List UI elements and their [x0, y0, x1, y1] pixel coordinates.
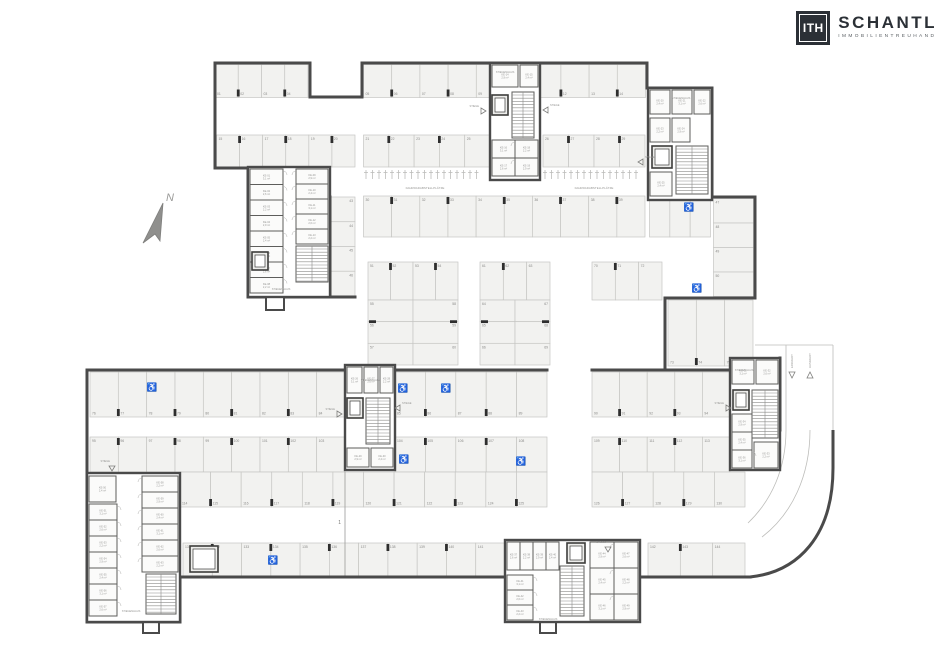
parking-stall	[647, 372, 675, 417]
stall-number: 85	[397, 412, 401, 416]
stall-number: 102	[290, 439, 296, 443]
stair-label: STIEGENHAUS	[361, 378, 380, 382]
stall-number: 118	[304, 502, 310, 506]
stall-row: 616263	[480, 262, 550, 300]
stall-number: 137	[361, 545, 367, 549]
stall-number: 08	[450, 92, 454, 96]
stall-row: 404142	[650, 196, 711, 237]
stall-number: 98	[177, 439, 181, 443]
stair-label: STIEGENHAUS	[539, 617, 558, 621]
stall-number: 46	[349, 273, 353, 277]
room-area: 3,1 m²	[99, 592, 106, 596]
stall-number: 36	[534, 198, 538, 202]
column-tick	[237, 90, 240, 97]
stall-number: 20	[334, 137, 338, 141]
stall-number: 84	[319, 412, 323, 416]
wheelchair-icon: ♿	[516, 456, 527, 466]
stall-number: 66	[482, 345, 486, 349]
stall-number: 81	[234, 412, 238, 416]
parking-stall	[532, 196, 560, 237]
room-area: 3,1 m²	[156, 532, 163, 536]
room-area: 3,1 m²	[598, 607, 605, 611]
column-tick	[567, 136, 570, 143]
room-area: 2,9 m²	[738, 423, 745, 427]
stall-number: 12	[563, 92, 567, 96]
column-tick	[450, 320, 457, 323]
parking-stall	[456, 372, 486, 417]
stall-row: 585960	[413, 300, 458, 365]
stall-number: 30	[366, 198, 370, 202]
stall-row: 47484950	[714, 199, 754, 297]
parking-stall	[203, 372, 231, 417]
column-tick	[387, 136, 390, 143]
stall-number: 80	[205, 412, 209, 416]
room-area: 2,9 m²	[308, 176, 315, 180]
stall-number: 83	[290, 412, 294, 416]
stall-number: 17	[265, 137, 269, 141]
room-area: 2,6 m²	[622, 555, 629, 559]
stall-number: 51	[370, 264, 374, 268]
stall-row: 104105106107108	[395, 437, 547, 472]
stall-number: 49	[716, 250, 720, 254]
parking-stall	[504, 196, 532, 237]
elevator-cab	[193, 549, 215, 569]
stall-number: 130	[716, 502, 722, 506]
stall-number: 105	[427, 439, 433, 443]
vestibule	[143, 622, 159, 633]
room-area: 2,2 m²	[263, 207, 270, 211]
column-tick	[454, 499, 457, 506]
elevator-cab	[255, 255, 265, 267]
column-tick	[515, 499, 518, 506]
stall-row: 2122232425	[364, 135, 491, 167]
parking-stall	[118, 372, 146, 417]
stall-number: 63	[529, 264, 533, 268]
stall-number: 122	[427, 502, 433, 506]
stall-number: 77	[120, 412, 124, 416]
stall-number: 114	[182, 502, 188, 506]
stall-number: 92	[649, 412, 653, 416]
stall-number: 71	[617, 264, 621, 268]
room-area: 2,2 m²	[622, 581, 629, 585]
room-area: 3,1 m²	[263, 176, 270, 180]
room-area: 2,2 m²	[99, 544, 106, 548]
room-area: 3,1 m²	[99, 512, 106, 516]
room-area: 3,1 m²	[678, 102, 685, 106]
stall-number: 35	[506, 198, 510, 202]
wheelchair-icon: ♿	[147, 382, 158, 392]
room-area: 2,9 m²	[523, 167, 530, 171]
core-bot-mid: KE-372,6 m²KE-382,2 m²KE-392,9 m²KE-402,…	[505, 540, 640, 622]
stall-number: 02	[240, 92, 244, 96]
core-top-mid: KE-142,9 m²KE-152,4 m²KE-163,1 m²KE-172,…	[490, 63, 540, 180]
parking-stall	[368, 300, 413, 322]
stall-number: 125	[518, 502, 524, 506]
stall-number: 79	[177, 412, 181, 416]
column-tick	[485, 409, 488, 416]
parking-stall	[425, 372, 455, 417]
stall-row: 26272829	[543, 135, 645, 167]
column-tick	[679, 544, 682, 551]
room-area: 2,2 m²	[523, 149, 530, 153]
room-area: 2,6 m²	[698, 102, 705, 106]
column-tick	[560, 90, 563, 97]
stall-row: 151617181920	[217, 135, 356, 167]
vestibule	[266, 297, 284, 310]
stall-number: 73	[670, 361, 674, 365]
stall-number: 141	[478, 545, 484, 549]
access-label: STIEGE	[645, 155, 655, 159]
core-mid-left: KE-263,1 m²KE-272,6 m²KE-282,2 m²KE-292,…	[345, 365, 395, 470]
stall-number: 111	[649, 439, 654, 443]
parking-stall	[368, 343, 413, 365]
stall-number: 07	[422, 92, 426, 96]
access-label: STIEGE	[325, 407, 335, 411]
logo-text: SCHANTL IMMOBILIENTREUHAND	[838, 11, 937, 39]
access-label: STIEGE	[596, 540, 606, 544]
stall-number: 43	[349, 199, 353, 203]
room-area: 3,1 m²	[308, 206, 315, 210]
stall-number: 94	[704, 412, 708, 416]
access-label: STIEGE	[550, 103, 560, 107]
room-area: 2,4 m²	[99, 576, 106, 580]
logo-mark: ITH	[796, 11, 830, 45]
column-tick	[284, 136, 287, 143]
room-area: 2,4 m²	[525, 76, 532, 80]
parking-stall	[232, 372, 260, 417]
stall-number: 134	[273, 545, 279, 549]
column-tick	[445, 544, 448, 551]
room-area: 2,4 m²	[656, 102, 663, 106]
stall-number: 78	[149, 412, 153, 416]
room-area: 3,1 m²	[351, 380, 358, 384]
stall-number: 95	[92, 439, 96, 443]
stall-row: 555657	[368, 300, 413, 365]
stall-number: 32	[422, 198, 426, 202]
stall-number: 14	[619, 92, 623, 96]
stall-number: 89	[519, 412, 523, 416]
column-tick	[283, 90, 286, 97]
room-area: 2,2 m²	[523, 556, 530, 560]
stall-number: 113	[704, 439, 710, 443]
parking-stall	[175, 372, 203, 417]
stall-row: 8586878889	[395, 372, 547, 417]
stall-number: 68	[544, 324, 548, 328]
stall-number: 126	[594, 502, 600, 506]
column-tick	[542, 320, 549, 323]
column-tick	[618, 136, 621, 143]
exit-arrow-icon	[807, 372, 813, 378]
parking-stall	[476, 196, 504, 237]
stall-number: 18	[288, 137, 292, 141]
stall-number: 59	[452, 324, 456, 328]
column-tick	[117, 409, 120, 416]
stall-number: 58	[452, 302, 456, 306]
room-area: 2,4 m²	[657, 184, 664, 188]
room-area: 2,2 m²	[383, 380, 390, 384]
stall-row: 9596979899100101102103	[90, 437, 345, 472]
column-tick	[615, 197, 618, 204]
north-arrow: N	[143, 192, 174, 243]
vestibule	[540, 622, 556, 633]
room-area: 2,6 m²	[99, 528, 106, 532]
parking-stall	[420, 196, 448, 237]
room-area: 2,9 m²	[156, 500, 163, 504]
parking-stall	[561, 196, 589, 237]
wheelchair-icon: ♿	[398, 383, 409, 393]
stall-number: 21	[366, 137, 370, 141]
column-tick	[559, 197, 562, 204]
access-label: STIEGE	[469, 104, 479, 108]
room-area: 2,2 m²	[762, 455, 769, 459]
column-tick	[673, 438, 676, 445]
stall-number: 23	[416, 137, 420, 141]
parking-stall	[675, 372, 703, 417]
parking-stall	[714, 199, 754, 224]
room-area: 2,4 m²	[378, 457, 385, 461]
column-tick	[174, 409, 177, 416]
stall-number: 82	[262, 412, 266, 416]
stall-number: 120	[366, 502, 372, 506]
logo-subtitle: IMMOBILIENTREUHAND	[838, 34, 937, 39]
stall-number: 136	[331, 545, 337, 549]
stall-row: 9091929394	[592, 372, 730, 417]
stall-number: 05	[366, 92, 370, 96]
stall-row: 109110111112113	[592, 437, 730, 472]
parking-stall	[260, 372, 288, 417]
stall-number: 09	[478, 92, 482, 96]
parking-stall	[714, 223, 754, 248]
column-tick	[481, 320, 488, 323]
stall-number: 26	[545, 137, 549, 141]
stall-number: 27	[571, 137, 575, 141]
stall-row: 30313233343536373839	[364, 196, 646, 237]
stall-number: 65	[482, 324, 486, 328]
parking-stall	[592, 372, 620, 417]
stall-number: 144	[715, 545, 721, 549]
bike-parking-label: FAHRRADABSTELLPLÄTZE	[406, 186, 445, 190]
column-tick	[117, 438, 120, 445]
parking-stall	[486, 372, 516, 417]
column-tick	[434, 263, 437, 270]
parking-stall	[620, 372, 648, 417]
parking-stall	[517, 372, 547, 417]
brand-logo: ITH SCHANTL IMMOBILIENTREUHAND	[796, 11, 937, 45]
stall-number: 44	[349, 224, 353, 228]
core-bot-right: KE-313,1 m²KE-322,6 m²KE-332,2 m²KE-342,…	[730, 358, 780, 470]
stall-row: 131132133134135136137138139140141	[183, 543, 505, 577]
wheelchair-icon: ♿	[441, 383, 452, 393]
stall-row: 707172	[592, 262, 662, 300]
stall-number: 121	[396, 502, 402, 506]
stair-label: STIEGENHAUS	[272, 287, 291, 291]
column-tick	[682, 499, 685, 506]
stall-number: 03	[264, 92, 268, 96]
parking-stall	[696, 300, 724, 366]
stall-number: 47	[716, 201, 720, 205]
room-area: 3,1 m²	[516, 582, 523, 586]
stall-number: 53	[415, 264, 419, 268]
stall-number: 91	[622, 412, 626, 416]
stall-number: 52	[393, 264, 397, 268]
floorplan-page: { "logo": { "initials": "ITH", "name": "…	[0, 0, 950, 671]
column-tick	[369, 320, 376, 323]
bike-parking-label: FAHRRADABSTELLPLÄTZE	[575, 186, 614, 190]
stall-number: 87	[458, 412, 462, 416]
room-area: 2,4 m²	[738, 441, 745, 445]
column-tick	[614, 263, 617, 270]
stall-number: 57	[370, 345, 374, 349]
stall-number: 31	[394, 198, 398, 202]
room-area: 2,6 m²	[263, 192, 270, 196]
elevator-cab	[350, 401, 360, 415]
column-tick	[616, 90, 619, 97]
stall-number: 110	[622, 439, 628, 443]
stall-number: 74	[698, 361, 702, 365]
column-tick	[270, 499, 273, 506]
wheelchair-icon: ♿	[692, 283, 703, 293]
room-area: 2,6 m²	[510, 556, 517, 560]
stall-number: 28	[596, 137, 600, 141]
stall-number: 138	[390, 545, 396, 549]
room-area: 2,2 m²	[308, 236, 315, 240]
stair-label: STIEGENHAUS	[672, 96, 691, 100]
room-area: 2,9 m²	[536, 556, 543, 560]
room-area: 2,2 m²	[516, 612, 523, 616]
stall-number: 112	[677, 439, 683, 443]
column-tick	[387, 544, 390, 551]
entry-arrow-icon	[789, 372, 795, 378]
stall-number: 16	[242, 137, 246, 141]
parking-stall	[147, 372, 175, 417]
parking-stall	[668, 300, 696, 366]
stall-row: 43444546	[331, 197, 355, 296]
stair-label: STIEGENHAUS	[496, 70, 515, 74]
parking-stall	[364, 196, 392, 237]
ramp-direction-label: EINFAHRT	[790, 354, 794, 368]
stall-number: 100	[234, 439, 240, 443]
column-tick	[390, 90, 393, 97]
stall-number: 129	[686, 502, 692, 506]
stall-number: 96	[120, 439, 124, 443]
stall-number: 86	[427, 412, 431, 416]
room-area: 2,6 m²	[763, 372, 770, 376]
stall-row: 646566	[480, 300, 515, 365]
access-label: STIEGE	[714, 401, 724, 405]
room-area: 2,9 m²	[354, 457, 361, 461]
column-tick	[393, 499, 396, 506]
stall-number: 88	[488, 412, 492, 416]
stall-number: 107	[488, 439, 494, 443]
stall-number: 15	[219, 137, 223, 141]
stall-number: 29	[622, 137, 626, 141]
stall-number: 39	[619, 198, 623, 202]
stall-number: 93	[677, 412, 681, 416]
room-area: 2,9 m²	[677, 130, 684, 134]
stall-number: 70	[594, 264, 598, 268]
stall-number: 143	[682, 545, 688, 549]
elevator-cab	[570, 546, 582, 560]
stall-number: 104	[397, 439, 403, 443]
column-tick	[389, 263, 392, 270]
parking-stall	[288, 372, 316, 417]
room-area: 2,6 m²	[308, 221, 315, 225]
stall-number: 61	[482, 264, 486, 268]
stall-number: 34	[478, 198, 482, 202]
elevator-cab	[495, 98, 505, 112]
stall-number: 119	[335, 502, 341, 506]
stall-number: 108	[519, 439, 525, 443]
stall-number: 50	[716, 274, 720, 278]
stall-number: 37	[563, 198, 567, 202]
section-label: 1	[338, 520, 341, 526]
stall-row: 737475	[668, 300, 753, 366]
stair-label: STIEGENHAUS	[735, 368, 754, 372]
column-tick	[287, 438, 290, 445]
stall-number: 56	[370, 324, 374, 328]
room-area: 2,2 m²	[156, 564, 163, 568]
room-area: 2,6 m²	[516, 597, 523, 601]
column-tick	[174, 438, 177, 445]
column-tick	[485, 438, 488, 445]
parking-stall	[368, 322, 413, 344]
stall-number: 67	[544, 302, 548, 306]
parking-stall	[650, 196, 670, 237]
wheelchair-icon: ♿	[399, 454, 410, 464]
room-area: 2,4 m²	[156, 516, 163, 520]
core-top-right: KE-202,4 m²KE-213,1 m²KE-222,6 m²KE-232,…	[648, 88, 712, 200]
core-top-left: KE-013,1 m²KE-022,6 m²KE-032,2 m²KE-042,…	[248, 167, 330, 297]
room-area: 2,2 m²	[263, 285, 270, 289]
column-tick	[424, 409, 427, 416]
column-tick	[332, 499, 335, 506]
stall-row: 126127128129130	[592, 472, 745, 507]
stall-number: 109	[594, 439, 600, 443]
room-area: 2,4 m²	[99, 489, 106, 493]
stall-row: 01020304	[215, 65, 308, 98]
stall-number: 55	[370, 302, 374, 306]
stall-number: 48	[716, 225, 720, 229]
room-area: 2,4 m²	[598, 581, 605, 585]
column-tick	[438, 136, 441, 143]
column-tick	[230, 438, 233, 445]
stall-number: 135	[302, 545, 308, 549]
room-area: 2,9 m²	[622, 607, 629, 611]
column-tick	[447, 197, 450, 204]
parking-stall	[725, 300, 753, 366]
wheelchair-icon: ♿	[268, 555, 279, 565]
column-tick	[424, 438, 427, 445]
column-tick	[695, 358, 698, 365]
stall-number: 62	[505, 264, 509, 268]
core-bot-left: KE-502,4 m²KE-513,1 m²KE-522,6 m²KE-532,…	[87, 473, 180, 622]
stall-number: 116	[243, 502, 249, 506]
floorplan-drawing: 0102030405060708091011121314151617181920…	[0, 0, 950, 671]
stall-number: 139	[419, 545, 425, 549]
column-tick	[209, 499, 212, 506]
stall-number: 04	[287, 92, 291, 96]
parking-stall	[589, 196, 617, 237]
stall-number: 128	[655, 502, 661, 506]
wheelchair-icon: ♿	[684, 202, 695, 212]
room-area: 2,6 m²	[99, 608, 106, 612]
column-tick	[447, 90, 450, 97]
stall-number: 99	[205, 439, 209, 443]
room-area: 2,6 m²	[500, 167, 507, 171]
access-arrow-icon	[543, 107, 548, 113]
stall-number: 06	[394, 92, 398, 96]
stall-number: 117	[274, 502, 280, 506]
